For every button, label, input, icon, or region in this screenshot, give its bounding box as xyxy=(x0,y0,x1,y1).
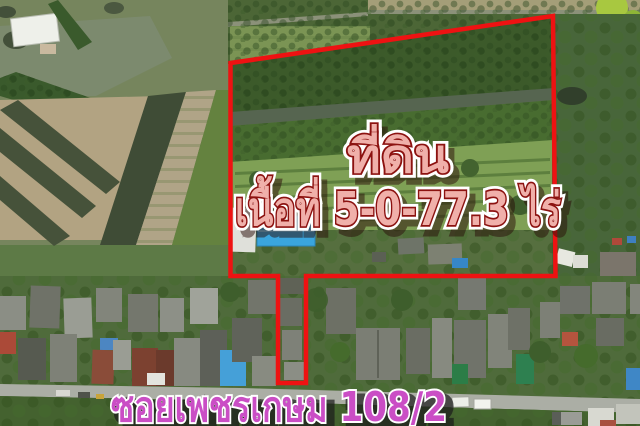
house-roof xyxy=(432,318,452,378)
house-roof xyxy=(18,338,46,380)
parked-car xyxy=(56,390,70,396)
house-roof xyxy=(190,288,218,324)
aerial-photo: ที่ดิน ที่ดิน ที่ดิน เนื้อที่ 5-0-77.3 ไ… xyxy=(0,0,640,426)
house-roof xyxy=(280,298,302,326)
motorbike xyxy=(96,394,104,399)
house-roof xyxy=(326,288,356,334)
white-roof-building xyxy=(616,404,640,424)
house-roof xyxy=(600,252,636,278)
house-roof xyxy=(0,296,26,330)
white-roof-building xyxy=(573,255,588,268)
house-roof xyxy=(592,282,626,314)
house-roof xyxy=(280,278,304,294)
house-roof xyxy=(248,280,276,314)
parked-car xyxy=(78,392,90,398)
land-title-text: ที่ดิน ที่ดิน ที่ดิน xyxy=(347,124,456,190)
house-roof xyxy=(282,330,302,360)
truck-cab xyxy=(552,412,561,425)
house-roof xyxy=(232,318,262,362)
house-roof xyxy=(96,288,122,322)
land-area-text: เนื้อที่ 5-0-77.3 ไร่ เนื้อที่ 5-0-77.3 … xyxy=(235,175,567,243)
white-van xyxy=(452,397,469,408)
house-roof xyxy=(63,298,92,339)
house-roof xyxy=(128,294,158,332)
rust-roof xyxy=(0,332,16,354)
blue-tarp xyxy=(627,236,636,243)
house-roof xyxy=(160,298,184,332)
pond xyxy=(557,87,587,105)
rust-roof xyxy=(600,420,616,426)
house-roof xyxy=(50,334,77,382)
road-name-text: ซอยเพชรเกษม 108/2 ซอยเพชรเกษม 108/2 xyxy=(111,383,453,426)
house-roof xyxy=(113,340,131,370)
shed-roof xyxy=(372,252,386,262)
house-roof xyxy=(612,238,622,245)
house-roof xyxy=(560,286,590,314)
pond xyxy=(104,2,124,14)
blue-tarp xyxy=(452,258,468,268)
house-roof xyxy=(630,284,640,314)
house-roof xyxy=(284,362,304,380)
blue-roof-building xyxy=(626,368,640,390)
rust-roof xyxy=(562,332,578,346)
land-title-main: ที่ดิน xyxy=(347,124,450,183)
house-roof xyxy=(252,356,276,386)
aerial-photo-canvas: ที่ดิน ที่ดิน ที่ดิน เนื้อที่ 5-0-77.3 ไ… xyxy=(0,0,640,426)
house-roof xyxy=(29,285,60,328)
house-roof xyxy=(406,328,430,374)
house-roof xyxy=(596,318,624,346)
rust-roof xyxy=(91,350,114,385)
shed-roof xyxy=(40,44,56,54)
white-van xyxy=(474,399,491,409)
green-tarp xyxy=(452,364,468,384)
house-roof xyxy=(508,308,530,350)
land-area-main: เนื้อที่ 5-0-77.3 ไร่ xyxy=(235,175,561,236)
white-roof-building xyxy=(10,13,59,46)
house-roof xyxy=(540,302,560,338)
house-roof xyxy=(458,278,486,310)
house-roof xyxy=(174,338,200,386)
farmland-northwest xyxy=(0,0,234,246)
road-name-main: ซอยเพชรเกษม 108/2 xyxy=(111,383,447,426)
